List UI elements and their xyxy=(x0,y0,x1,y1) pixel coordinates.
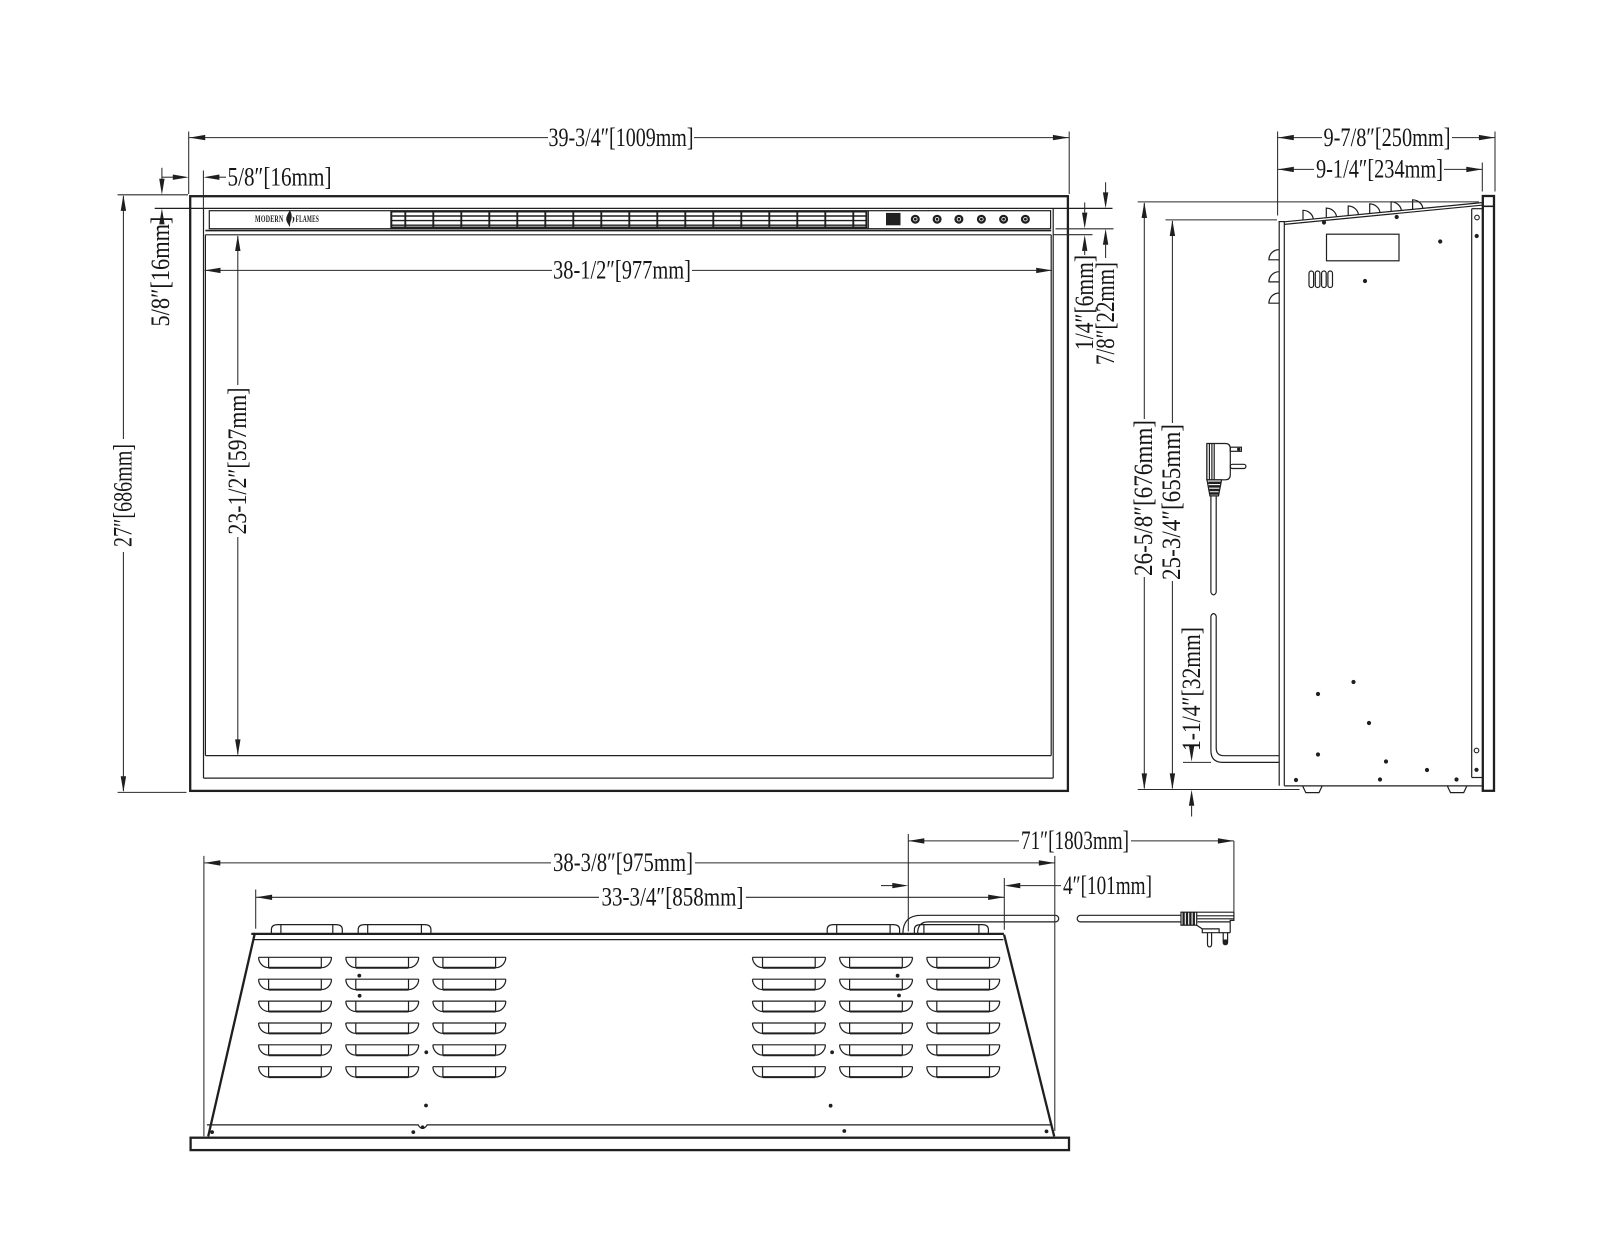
svg-text:4″[101mm]: 4″[101mm] xyxy=(1063,871,1152,900)
svg-text:MODERN: MODERN xyxy=(255,215,284,225)
svg-text:9-7/8″[250mm]: 9-7/8″[250mm] xyxy=(1324,123,1451,152)
svg-text:23-1/2″[597mm]: 23-1/2″[597mm] xyxy=(223,388,252,535)
svg-text:26-5/8″[676mm]: 26-5/8″[676mm] xyxy=(1129,420,1158,576)
svg-text:27″[686mm]: 27″[686mm] xyxy=(109,444,138,547)
svg-text:7/8″[22mm]: 7/8″[22mm] xyxy=(1091,262,1120,365)
svg-text:25-3/4″[655mm]: 25-3/4″[655mm] xyxy=(1157,424,1186,580)
svg-text:5/8″[16mm]: 5/8″[16mm] xyxy=(146,217,175,327)
svg-text:39-3/4″[1009mm]: 39-3/4″[1009mm] xyxy=(549,123,694,152)
svg-text:5/8″[16mm]: 5/8″[16mm] xyxy=(228,162,332,191)
svg-text:33-3/4″[858mm]: 33-3/4″[858mm] xyxy=(602,883,744,912)
svg-text:38-3/8″[975mm]: 38-3/8″[975mm] xyxy=(553,848,693,877)
svg-text:1-1/4″[32mm]: 1-1/4″[32mm] xyxy=(1177,627,1206,751)
svg-text:9-1/4″[234mm]: 9-1/4″[234mm] xyxy=(1316,155,1443,184)
svg-text:38-1/2″[977mm]: 38-1/2″[977mm] xyxy=(553,256,691,285)
svg-text:71″[1803mm]: 71″[1803mm] xyxy=(1021,826,1129,855)
svg-text:FLAMES: FLAMES xyxy=(296,215,320,225)
